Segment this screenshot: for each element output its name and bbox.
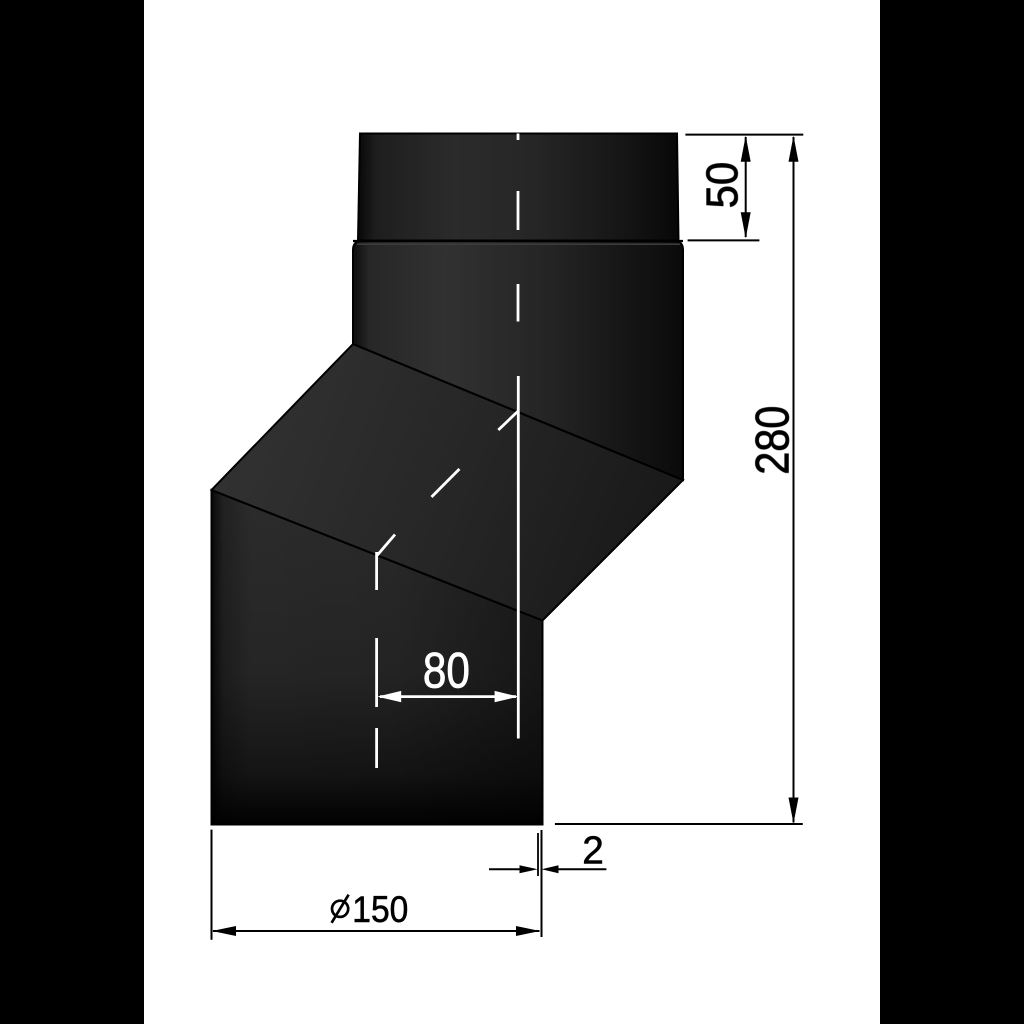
svg-text:50: 50: [698, 162, 747, 209]
svg-text:2: 2: [582, 829, 604, 872]
svg-text:150: 150: [352, 888, 408, 930]
svg-text:280: 280: [746, 406, 799, 475]
svg-text:80: 80: [423, 642, 470, 699]
